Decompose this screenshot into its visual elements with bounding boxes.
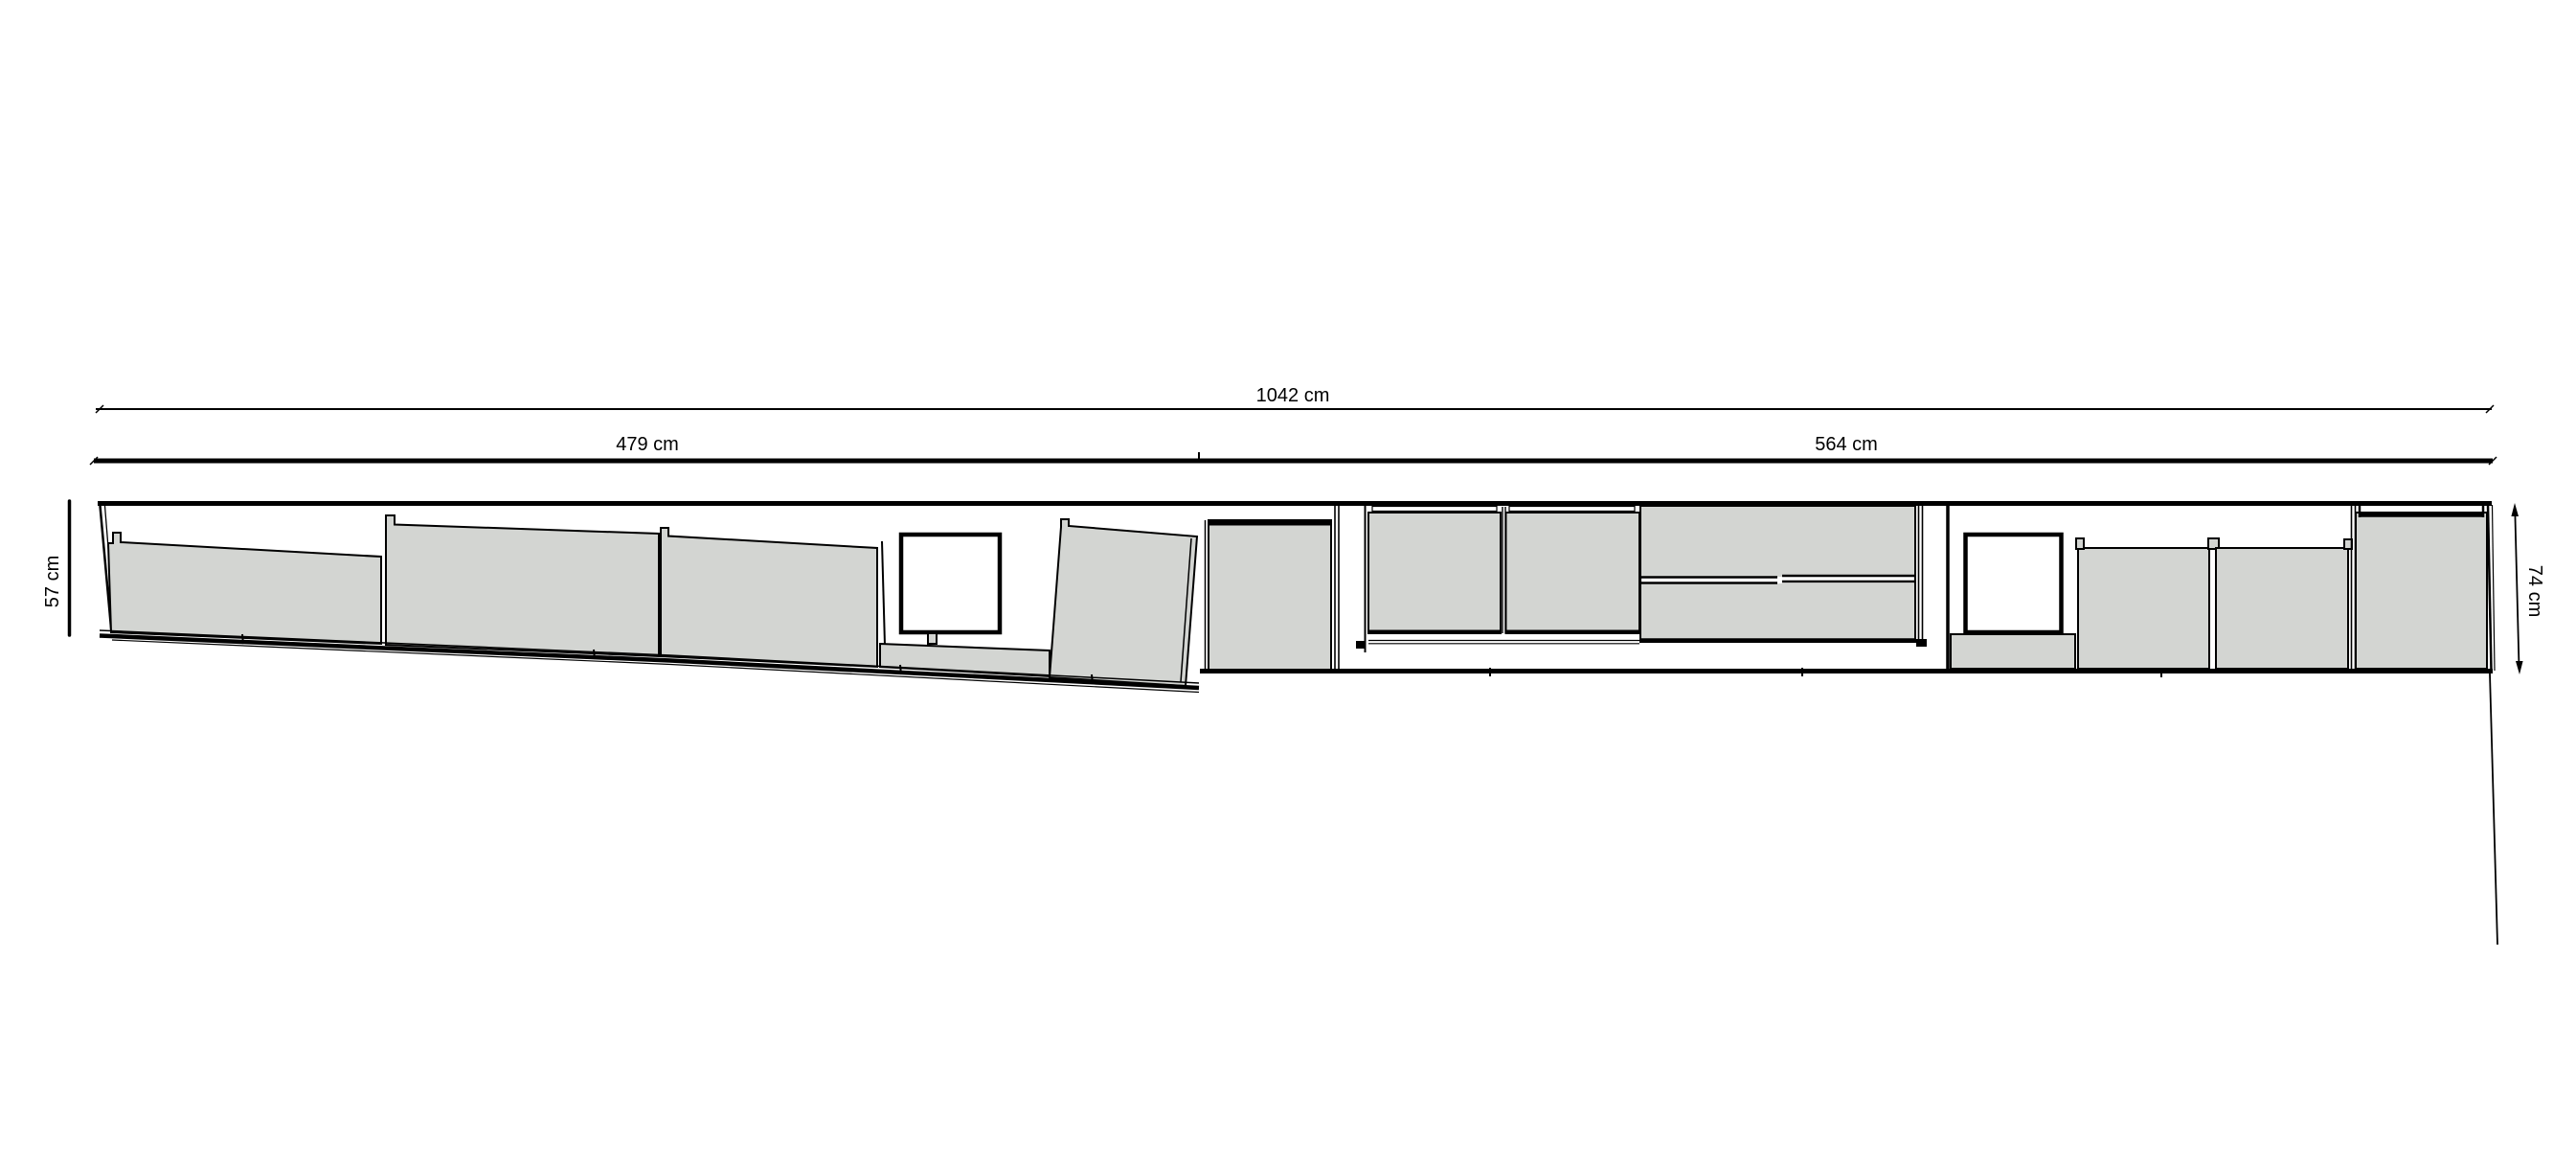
panel-edge-line <box>882 541 885 646</box>
extension-leader-line <box>2490 673 2497 945</box>
tilted-flap-panel <box>1050 519 1197 686</box>
sloped-door-panel <box>108 533 381 644</box>
dimension-label-left-height: 57 cm <box>42 556 63 607</box>
rail-joint-tick <box>242 634 243 644</box>
dimension-section-widths: 479 cm 564 cm <box>90 434 2497 465</box>
dimension-line-right-height <box>2515 511 2519 667</box>
arrow-up-icon <box>2511 503 2519 516</box>
dimension-label-right-height: 74 cm <box>2524 565 2545 617</box>
dimension-height-left: 57 cm <box>42 501 70 635</box>
strut-foot <box>1356 641 1366 649</box>
dimension-total-width: 1042 cm <box>96 385 2494 413</box>
door-panel <box>1506 513 1640 633</box>
hung-panel <box>2078 548 2209 669</box>
opening-support-stub <box>928 633 937 644</box>
left-sloped-section <box>100 506 1199 693</box>
panel-hook <box>2076 538 2084 549</box>
rail-joint-tick <box>594 650 595 659</box>
right-side-panel-inner <box>2493 505 2496 671</box>
rail-joint-tick <box>1092 674 1093 684</box>
dimension-height-right: 74 cm <box>2490 503 2545 945</box>
end-unit-panel <box>2356 513 2487 669</box>
dimension-label-right-section: 564 cm <box>1815 434 1878 455</box>
right-side-panel <box>2488 505 2492 671</box>
cabinet-elevation <box>98 504 2495 693</box>
middle-section <box>1200 506 1948 676</box>
door-panel <box>1209 520 1331 671</box>
hung-panel <box>2216 548 2348 669</box>
drawer-unit <box>1640 506 1915 642</box>
dimension-label-total: 1042 cm <box>1256 385 1330 406</box>
rail-joint-tick <box>900 665 901 674</box>
dimension-label-left-section: 479 cm <box>616 434 679 455</box>
sloped-door-panel <box>386 515 659 656</box>
side-panel-foot <box>1916 639 1927 647</box>
right-section <box>1948 504 2495 677</box>
drawing-canvas: 1042 cm 479 cm 564 cm 57 cm 74 cm <box>0 0 2576 1164</box>
door-top-groove <box>1509 507 1635 512</box>
sloped-door-panel <box>661 528 877 667</box>
elevation-drawing: 1042 cm 479 cm 564 cm 57 cm 74 cm <box>0 0 2576 1164</box>
door-panel <box>1368 513 1501 633</box>
lower-band <box>1951 634 2075 669</box>
square-opening <box>901 535 1000 632</box>
square-opening <box>1966 535 2062 632</box>
door-top-groove <box>1372 507 1497 512</box>
arrow-down-icon <box>2516 661 2523 674</box>
